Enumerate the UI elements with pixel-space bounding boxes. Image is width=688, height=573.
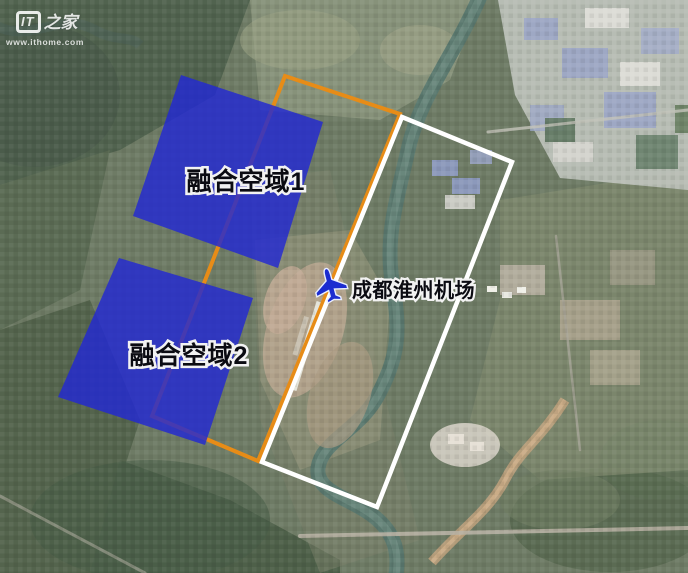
watermark-suffix: 之家 [44,14,78,31]
airspace-overlay: 融合空域1 融合空域2 成都淮州机场 [0,0,688,573]
airport-label: 成都淮州机场 [352,278,475,302]
fusion-airspace-2-label: 融合空域2 [130,341,249,370]
watermark-url: www.ithome.com [6,38,84,47]
watermark: IT 之家 www.ithome.com [6,11,84,47]
satellite-map: 融合空域1 融合空域2 成都淮州机场 IT 之家 www.ithome.com [0,0,688,573]
fusion-airspace-1-label: 融合空域1 [187,167,306,196]
watermark-logo: IT 之家 [16,11,84,33]
airplane-icon [310,264,350,305]
watermark-it-badge: IT [16,11,41,33]
